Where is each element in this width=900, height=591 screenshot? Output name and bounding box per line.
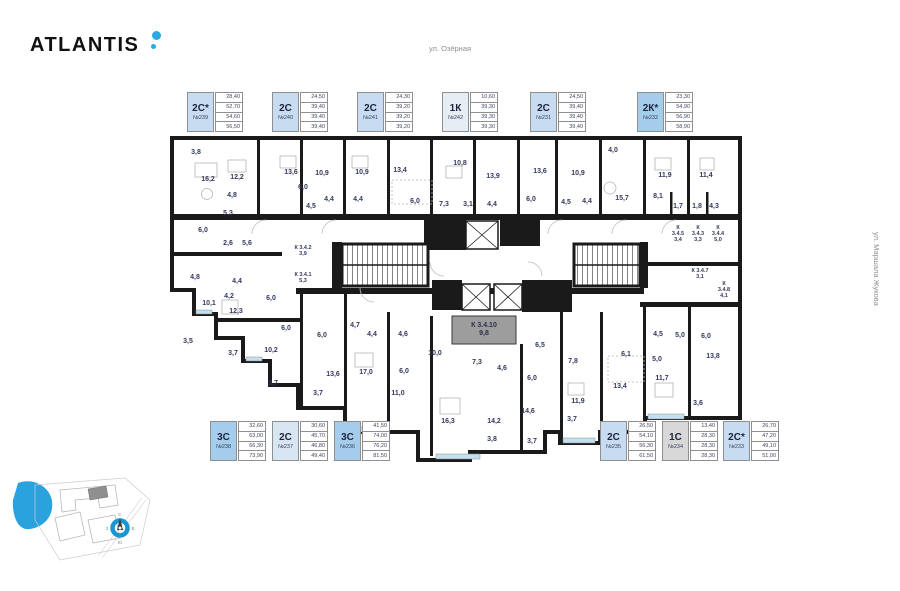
room-area-label: 6,1 [621,351,631,358]
room-area-label: 4,6 [497,365,507,372]
unit-type-label: 2С [537,103,550,114]
unit-number: №242 [448,115,463,121]
unit-card-236[interactable]: 3С№23641,5074,0076,2081,50 [334,421,390,461]
room-area-label: 11,7 [655,375,668,382]
unit-area-value: 73,90 [238,451,266,461]
unit-area-value: 39,40 [558,113,586,123]
room-area-label: 4,4 [487,201,497,208]
unit-type-label: 2С [364,103,377,114]
unit-type-cell: 2С№240 [272,92,299,132]
unit-area-value: 30,60 [300,421,328,432]
unit-number: №238 [216,444,231,450]
unit-card-238[interactable]: 3С№23832,6063,0066,3073,90 [210,421,266,461]
site-buildings [55,485,120,543]
unit-card-233[interactable]: 2С*№23326,7047,2049,1051,00 [723,421,779,461]
room-area-label: 3,7 [228,350,238,357]
room-area-label: 6,0 [701,333,711,340]
unit-area-value: 49,10 [751,442,779,452]
unit-number: №231 [536,115,551,121]
room-area-label: 6,0 [298,184,308,191]
unit-type-cell: 3С№238 [210,421,237,461]
unit-area-value: 39,40 [300,122,328,132]
room-area-label: 3,7 [567,416,577,423]
unit-area-value: 56,30 [628,442,656,452]
unit-card-235[interactable]: 2С№23526,5054,1056,3061,50 [600,421,656,461]
unit-area-value: 39,40 [558,103,586,113]
room-area-label: 11,9 [658,172,671,179]
unit-area-value: 10,60 [470,92,498,103]
site-minimap: С В Ю З [13,478,150,560]
room-area-label: 11,0 [391,390,404,397]
room-area-label: 1,8 [692,203,702,210]
unit-area-value: 56,50 [215,122,243,132]
room-area-label: 10,8 [453,160,467,167]
unit-area-value: 39,30 [470,122,498,132]
room-area-label: 11,9 [571,398,584,405]
unit-area-value: 28,30 [690,442,718,452]
unit-areas: 41,5074,0076,2081,50 [362,421,390,461]
room-area-label: 6,0 [399,368,409,375]
unit-areas: 32,6063,0066,3073,90 [238,421,266,461]
unit-area-value: 52,70 [215,103,243,113]
room-area-label: 6,0 [526,196,536,203]
unit-area-value: 76,20 [362,442,390,452]
unit-area-value: 39,20 [385,113,413,123]
unit-type-cell: 3С№236 [334,421,361,461]
unit-type-cell: 2К*№232 [637,92,664,132]
unit-area-value: 24,30 [385,92,413,103]
room-area-label: 4,4 [232,278,242,285]
room-area-label: 5,0 [675,332,685,339]
room-area-label: 7,3 [472,359,482,366]
unit-type-label: 2К* [643,103,659,114]
unit-type-label: 2С* [728,432,745,443]
room-area-label: 4,5 [306,203,316,210]
room-area-label: 7,3 [439,201,449,208]
unit-card-240[interactable]: 2С№24024,5039,4039,4039,40 [272,92,328,132]
unit-areas: 30,6045,7046,8049,40 [300,421,328,461]
room-area-label: 5,0 [652,356,662,363]
unit-area-value: 39,40 [300,103,328,113]
svg-text:Ю: Ю [118,540,123,545]
room-area-label: 4,4 [367,331,377,338]
unit-type-cell: 2С*№233 [723,421,750,461]
room-area-label: 4,5 [561,199,571,206]
room-area-label: 3,8 [487,436,497,443]
room-area-label: 3,7 [268,380,278,387]
unit-card-237[interactable]: 2С№23730,6045,7046,8049,40 [272,421,328,461]
stairwell-right [574,244,640,286]
unit-areas: 13,4028,3028,3028,30 [690,421,718,461]
unit-type-label: 3С [217,432,230,443]
unit-type-cell: 1С№234 [662,421,689,461]
unit-area-value: 39,40 [300,113,328,123]
unit-area-value: 26,50 [628,421,656,432]
unit-number: №235 [606,444,621,450]
unit-card-242[interactable]: 1К№24210,6039,3039,3039,30 [442,92,498,132]
unit-card-231[interactable]: 2С№23124,5039,4039,4039,40 [530,92,586,132]
unit-area-value: 13,40 [690,421,718,432]
unit-area-value: 81,50 [362,451,390,461]
unit-area-value: 28,40 [215,92,243,103]
room-area-label: 13,6 [284,169,298,176]
unit-areas: 28,4052,7054,6056,50 [215,92,243,132]
room-area-label: 10,0 [428,350,442,357]
room-area-label: 3,5 [183,338,193,345]
unit-number: №240 [278,115,293,121]
room-area-label: 5,3 [223,210,233,217]
room-area-label: 2,6 [223,240,233,247]
unit-area-value: 56,90 [665,113,693,123]
room-area-label: 4,7 [350,322,360,329]
unit-areas: 26,5054,1056,3061,50 [628,421,656,461]
unit-area-value: 32,60 [238,421,266,432]
unit-area-value: 23,30 [665,92,693,103]
room-area-label: 10,1 [202,300,216,307]
unit-number: №239 [193,115,208,121]
room-area-label: 4,2 [224,293,234,300]
room-area-label: 13,6 [533,168,547,175]
unit-type-label: 2С* [192,103,209,114]
room-area-label: 11,4 [699,172,712,179]
unit-area-value: 45,70 [300,432,328,442]
unit-area-value: 39,40 [558,122,586,132]
room-area-label: 4,4 [324,196,334,203]
room-area-label: 6,0 [410,198,420,205]
unit-number: №236 [340,444,355,450]
unit-number: №237 [278,444,293,450]
unit-area-value: 63,00 [238,432,266,442]
room-area-label: 7,8 [568,358,578,365]
unit-type-label: 1К [450,103,462,114]
unit-area-value: 26,70 [751,421,779,432]
room-area-label: 6,0 [281,325,291,332]
unit-area-value: 74,00 [362,432,390,442]
room-area-label: 13,4 [613,383,627,390]
unit-card-239[interactable]: 2С*№23928,4052,7054,6056,50 [187,92,243,132]
room-area-label: 17,0 [359,369,373,376]
unit-areas: 10,6039,3039,3039,30 [470,92,498,132]
room-area-label: 14,6 [521,408,535,415]
unit-type-cell: 2С*№239 [187,92,214,132]
room-area-label: 12,2 [230,174,244,181]
room-area-label: 1,7 [673,203,683,210]
room-area-label: 3,7 [313,390,323,397]
unit-type-cell: 2С№235 [600,421,627,461]
room-area-label: 8,1 [653,193,663,200]
unit-type-label: 2С [279,103,292,114]
unit-area-value: 39,30 [470,103,498,113]
unit-area-value: 28,30 [690,451,718,461]
unit-area-value: 61,50 [628,451,656,461]
lake-shape [13,481,52,529]
unit-areas: 23,3054,9056,9058,90 [665,92,693,132]
unit-areas: 24,5039,4039,4039,40 [558,92,586,132]
room-area-label: 4,6 [398,331,408,338]
room-area-label: 6,0 [266,295,276,302]
unit-area-value: 49,40 [300,451,328,461]
room-area-label: 14,2 [487,418,501,425]
unit-area-value: 39,30 [470,113,498,123]
unit-area-value: 41,50 [362,421,390,432]
unit-area-value: 51,00 [751,451,779,461]
unit-type-cell: 1К№242 [442,92,469,132]
room-area-label: 10,9 [315,170,329,177]
unit-areas: 26,7047,2049,1051,00 [751,421,779,461]
floor-plan: 3,816,212,213,64,86,05,310,910,94,44,44,… [0,0,900,591]
room-area-label: 4,4 [353,196,363,203]
floorplan-page: ATLANTIS ул. Озёрная ул. Маршала Жукова [0,0,900,591]
stairwell-left [342,244,428,286]
unit-area-value: 24,50 [558,92,586,103]
unit-type-cell: 2С№231 [530,92,557,132]
room-area-label: 4,8 [190,274,200,281]
unit-area-value: 39,20 [385,103,413,113]
room-area-label: 3,1 [463,201,473,208]
unit-card-241[interactable]: 2С№24124,3039,2039,2039,20 [357,92,413,132]
room-area-label: 4,3 [709,203,719,210]
unit-area-value: 54,60 [215,113,243,123]
unit-area-value: 54,10 [628,432,656,442]
room-area-label: 13,4 [393,167,407,174]
unit-number: №241 [363,115,378,121]
unit-type-label: 2С [279,432,292,443]
room-area-label: 15,7 [615,195,629,202]
unit-area-value: 24,50 [300,92,328,103]
room-area-label: 13,9 [486,173,500,180]
unit-area-value: 66,30 [238,442,266,452]
room-area-label: 6,0 [198,227,208,234]
room-area-label: 4,5 [653,331,663,338]
room-area-label: 10,9 [571,170,585,177]
unit-type-label: 2С [607,432,620,443]
room-area-label: 4,8 [227,192,237,199]
unit-areas: 24,3039,2039,2039,20 [385,92,413,132]
svg-text:С: С [118,512,122,517]
room-area-label: 3,6 [693,400,703,407]
unit-area-value: 58,90 [665,122,693,132]
room-area-label: 4,0 [608,147,618,154]
unit-area-value: 46,80 [300,442,328,452]
unit-type-cell: 2С№237 [272,421,299,461]
unit-area-value: 39,20 [385,122,413,132]
room-area-label: 4,4 [582,198,592,205]
unit-card-234[interactable]: 1С№23413,4028,3028,3028,30 [662,421,718,461]
unit-areas: 24,5039,4039,4039,40 [300,92,328,132]
room-area-label: 13,8 [706,353,720,360]
unit-type-label: 1С [669,432,682,443]
unit-type-cell: 2С№241 [357,92,384,132]
room-area-label: 12,3 [229,308,243,315]
unit-number: №233 [729,444,744,450]
room-area-label: 16,2 [201,176,215,183]
room-area-label: 3,8 [191,149,201,156]
room-area-label: 3,7 [527,438,537,445]
room-area-label: 13,6 [326,371,340,378]
room-area-label: 6,5 [535,342,545,349]
unit-area-value: 54,90 [665,103,693,113]
room-area-label: 16,3 [441,418,455,425]
unit-number: №234 [668,444,683,450]
room-area-label: 10,9 [355,169,369,176]
unit-number: №232 [643,115,658,121]
svg-text:З: З [106,526,109,531]
unit-type-label: 3С [341,432,354,443]
room-area-label: 6,0 [527,375,537,382]
unit-card-232[interactable]: 2К*№23223,3054,9056,9058,90 [637,92,693,132]
unit-area-value: 47,20 [751,432,779,442]
room-area-label: 10,2 [264,347,278,354]
svg-text:В: В [131,526,134,531]
unit-area-value: 28,30 [690,432,718,442]
room-area-label: 6,0 [317,332,327,339]
room-area-label: 5,6 [242,240,252,247]
